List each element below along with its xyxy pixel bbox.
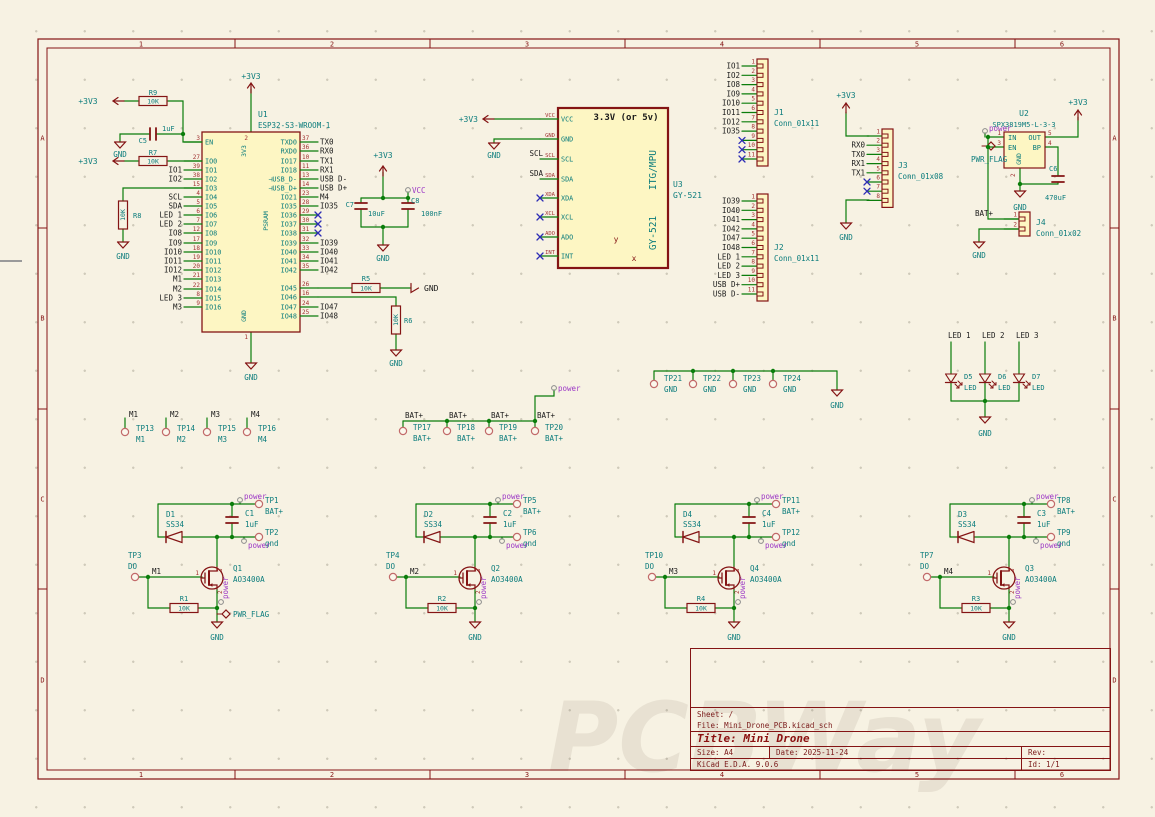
schematic-text[interactable]: 3 (475, 568, 482, 572)
frame-row-label[interactable]: C (1112, 496, 1116, 504)
test-point[interactable] (689, 380, 696, 387)
gnd-label-arrow-icon[interactable] (411, 284, 419, 293)
schematic-text[interactable]: 35 (302, 263, 310, 270)
schematic-text[interactable]: power (248, 541, 271, 550)
schematic-text[interactable]: IO9 (205, 240, 217, 248)
schematic-text[interactable]: DO (645, 562, 655, 571)
schematic-text[interactable]: 7 (196, 217, 200, 224)
schematic-text[interactable]: 1uF (1037, 520, 1051, 529)
gnd-symbol-icon[interactable] (212, 622, 223, 628)
gnd-symbol-icon[interactable] (489, 143, 500, 149)
connector-pin[interactable] (1019, 227, 1025, 231)
net-label[interactable]: IO2 (726, 71, 740, 80)
schematic-text[interactable]: SCL (545, 153, 556, 159)
schematic-text[interactable]: IO14 (205, 286, 221, 294)
net-label[interactable]: LED 1 (717, 252, 740, 261)
test-point[interactable] (162, 428, 169, 435)
schematic-text[interactable]: 1 (987, 570, 991, 577)
j2-ref[interactable]: J2 (774, 243, 784, 252)
schematic-text[interactable]: TP2 (265, 528, 279, 537)
net-label[interactable]: IO12 (722, 117, 740, 126)
schematic-text[interactable]: TP11 (782, 496, 800, 505)
net-label[interactable]: RX0 (851, 141, 865, 150)
led-icon[interactable] (946, 374, 957, 383)
schematic-text[interactable]: ⊣USB_D+ (268, 185, 297, 193)
schematic-text[interactable]: VCC (412, 186, 426, 195)
schematic-text[interactable]: IO18 (281, 167, 297, 175)
schematic-text[interactable]: C8 (411, 197, 419, 205)
frame-row-label[interactable]: B (40, 315, 44, 323)
schematic-text[interactable]: 10K (695, 605, 707, 613)
net-label[interactable]: TX1 (320, 157, 334, 166)
net-label[interactable]: IO1 (726, 62, 740, 71)
schematic-text[interactable]: 4 (751, 86, 755, 93)
connector-pin[interactable] (757, 92, 763, 96)
schematic-text[interactable]: GND (487, 151, 501, 160)
schematic-text[interactable]: GND (1002, 633, 1016, 642)
junction-dot[interactable] (663, 575, 667, 579)
schematic-text[interactable]: VCC (561, 116, 573, 124)
pwr-flag-icon[interactable] (222, 610, 230, 618)
schematic-text[interactable]: 12 (193, 226, 201, 233)
frame-column-label[interactable]: 1 (139, 41, 143, 49)
schematic-text[interactable]: SS34 (683, 520, 702, 529)
schematic-text[interactable]: 1 (1013, 212, 1017, 219)
schematic-text[interactable]: 33 (302, 245, 310, 252)
schematic-text[interactable]: power (765, 541, 788, 550)
schematic-text[interactable]: IO38 (281, 230, 297, 238)
schematic-text[interactable]: 3 (196, 135, 200, 142)
junction-dot[interactable] (406, 196, 410, 200)
schematic-text[interactable]: BAT+ (499, 434, 518, 443)
schematic-text[interactable]: LED (964, 384, 977, 392)
schematic-text[interactable]: 36 (302, 144, 310, 151)
net-label[interactable]: IO2 (168, 175, 182, 184)
schematic-text[interactable]: GND (424, 284, 439, 293)
gnd-symbol-icon[interactable] (115, 142, 126, 148)
connector-pin[interactable] (757, 73, 763, 77)
schematic-text[interactable]: U3 (673, 180, 683, 189)
schematic-text[interactable]: 1uF (245, 520, 259, 529)
schematic-text[interactable]: 7 (751, 249, 755, 256)
frame-row-label[interactable]: B (1112, 315, 1116, 323)
schematic-text[interactable]: SCL (561, 156, 573, 164)
schematic-text[interactable]: M4 (251, 410, 261, 419)
gnd-symbol-icon[interactable] (1004, 622, 1015, 628)
schematic-text[interactable]: 5 (751, 231, 755, 238)
schematic-text[interactable]: 2 (244, 135, 248, 142)
schematic-text[interactable]: IO35 (281, 203, 297, 211)
led-icon[interactable] (958, 381, 962, 385)
schematic-text[interactable]: TP22 (703, 374, 721, 383)
junction-dot[interactable] (986, 135, 990, 139)
test-point[interactable] (243, 428, 250, 435)
frame-row-label[interactable]: D (40, 677, 44, 685)
schematic-text[interactable]: M1 (129, 410, 138, 419)
schematic-text[interactable]: 7 (751, 114, 755, 121)
junction-dot[interactable] (404, 575, 408, 579)
schematic-text[interactable]: IO46 (281, 294, 297, 302)
schematic-text[interactable]: IO5 (205, 203, 217, 211)
net-label[interactable]: IO42 (320, 266, 338, 275)
schematic-text[interactable]: TP14 (177, 424, 196, 433)
schematic-text[interactable]: LED 3 (1016, 331, 1039, 340)
connector-pin[interactable] (882, 198, 888, 202)
junction-dot[interactable] (381, 196, 385, 200)
schematic-text[interactable]: M1 (152, 567, 161, 576)
led-icon[interactable] (1014, 374, 1025, 383)
frame-row-label[interactable]: D (1112, 677, 1116, 685)
test-point[interactable] (531, 427, 538, 434)
schematic-text[interactable]: GND (244, 373, 258, 382)
schematic-text[interactable]: XCL (561, 214, 573, 222)
junction-dot[interactable] (1022, 535, 1026, 539)
schematic-text[interactable]: 9 (196, 300, 200, 307)
junction-dot[interactable] (731, 369, 735, 373)
connector-pin[interactable] (757, 255, 763, 259)
schematic-text[interactable]: 4 (196, 190, 200, 197)
schematic-text[interactable]: IO12 (205, 267, 221, 275)
diode[interactable] (424, 532, 440, 543)
schematic-text[interactable]: 23 (302, 190, 310, 197)
schematic-text[interactable]: TP16 (258, 424, 277, 433)
net-label[interactable]: IO48 (320, 312, 339, 321)
schematic-text[interactable]: 10K (392, 314, 400, 326)
schematic-text[interactable]: TP3 (128, 551, 142, 560)
schematic-text[interactable]: 1uF (503, 520, 517, 529)
net-label[interactable]: IO48 (722, 243, 741, 252)
schematic-text[interactable]: 1uF (762, 520, 776, 529)
schematic-text[interactable]: DO (128, 562, 138, 571)
schematic-text[interactable]: GND (783, 385, 797, 394)
schematic-text[interactable]: C6 (1049, 165, 1057, 173)
schematic-text[interactable]: 3 (734, 568, 741, 572)
schematic-text[interactable]: 38 (193, 172, 201, 179)
gnd-symbol-icon[interactable] (118, 242, 129, 248)
test-point[interactable] (648, 573, 655, 580)
net-label[interactable]: IO40 (320, 248, 339, 257)
schematic-text[interactable]: RXD0 (281, 148, 297, 156)
kicad-schematic-canvas[interactable]: PCBWay 112233445566AABBCCDD3EN27IO039IO1… (0, 0, 1155, 817)
frame-column-label[interactable]: 6 (1060, 771, 1064, 779)
connector-pin[interactable] (757, 208, 763, 212)
schematic-text[interactable]: x (632, 254, 637, 263)
schematic-text[interactable]: 34 (302, 254, 310, 261)
j4-body[interactable] (1019, 212, 1030, 236)
frame-column-label[interactable]: 1 (139, 771, 143, 779)
schematic-text[interactable]: 9 (751, 268, 755, 275)
net-label[interactable]: IO35 (320, 202, 338, 211)
test-point[interactable] (513, 500, 520, 507)
net-label[interactable]: IO8 (726, 80, 740, 89)
j4-value[interactable]: Conn_01x02 (1036, 229, 1081, 238)
schematic-text[interactable]: 6 (196, 208, 200, 215)
schematic-text[interactable]: 6 (876, 175, 880, 182)
schematic-text[interactable]: 3 (751, 77, 755, 84)
j1-ref[interactable]: J1 (774, 108, 784, 117)
schematic-text[interactable]: 37 (302, 135, 310, 142)
schematic-text[interactable]: IO42 (281, 267, 297, 275)
connector-pin[interactable] (757, 120, 763, 124)
schematic-text[interactable]: 8 (196, 291, 200, 298)
schematic-text[interactable]: GND (664, 385, 678, 394)
schematic-text[interactable]: 3 (876, 147, 880, 154)
connector-pin[interactable] (757, 129, 763, 133)
schematic-text[interactable]: AO3400A (233, 575, 265, 584)
connector-pin[interactable] (757, 138, 763, 142)
junction-dot[interactable] (488, 535, 492, 539)
schematic-text[interactable]: 5 (196, 199, 200, 206)
junction-dot[interactable] (691, 369, 695, 373)
net-label[interactable]: RX1 (851, 159, 865, 168)
net-label[interactable]: IO41 (722, 215, 740, 224)
schematic-text[interactable]: 6 (751, 105, 755, 112)
schematic-text[interactable]: 1 (195, 570, 199, 577)
schematic-text[interactable]: TP23 (743, 374, 761, 383)
test-point[interactable] (443, 427, 450, 434)
schematic-text[interactable]: AO3400A (750, 575, 782, 584)
schematic-text[interactable]: 11 (302, 163, 310, 170)
schematic-text[interactable]: GND (240, 310, 248, 322)
connector-pin[interactable] (882, 152, 888, 156)
net-label[interactable]: USB D+ (320, 184, 348, 193)
schematic-text[interactable]: PWR_FLAG (233, 610, 270, 619)
test-point[interactable] (389, 573, 396, 580)
net-label[interactable]: LED 3 (159, 294, 182, 303)
net-label[interactable]: LED 1 (159, 211, 182, 220)
schematic-text[interactable]: 5 (876, 165, 880, 172)
schematic-text[interactable]: GND (1013, 203, 1027, 212)
schematic-text[interactable]: IO36 (281, 212, 297, 220)
schematic-text[interactable]: 1 (453, 570, 457, 577)
schematic-text[interactable]: 1uF (162, 125, 175, 133)
schematic-text[interactable]: 1 (751, 194, 755, 201)
net-label[interactable]: M1 (173, 275, 182, 284)
schematic-text[interactable]: BP (1033, 144, 1041, 152)
schematic-text[interactable]: 1 (712, 570, 716, 577)
schematic-text[interactable]: C7 (346, 201, 354, 209)
schematic-text[interactable]: GND (978, 429, 992, 438)
net-label[interactable]: TX1 (851, 168, 865, 177)
connector-pin[interactable] (882, 180, 888, 184)
schematic-text[interactable]: GND (113, 150, 127, 159)
junction-dot[interactable] (473, 606, 477, 610)
net-label[interactable]: IO40 (722, 206, 741, 215)
schematic-text[interactable]: power (506, 541, 529, 550)
schematic-text[interactable]: 18 (193, 245, 201, 252)
schematic-text[interactable]: C1 (245, 509, 254, 518)
net-label[interactable]: IO11 (722, 108, 740, 117)
schematic-text[interactable]: IO3 (205, 185, 217, 193)
schematic-text[interactable]: 13 (302, 172, 310, 179)
test-point[interactable] (121, 428, 128, 435)
schematic-text[interactable]: 21 (193, 272, 201, 279)
schematic-text[interactable]: power (221, 576, 230, 599)
schematic-text[interactable]: GND (210, 633, 224, 642)
schematic-text[interactable]: 10K (436, 605, 448, 613)
test-point[interactable] (772, 533, 779, 540)
net-label[interactable]: USB D- (713, 290, 740, 299)
net-label[interactable]: IO9 (168, 239, 182, 248)
schematic-text[interactable]: Q2 (491, 564, 500, 573)
test-point[interactable] (203, 428, 210, 435)
schematic-text[interactable]: TP17 (413, 423, 431, 432)
gnd-symbol-icon[interactable] (729, 622, 740, 628)
schematic-text[interactable]: GND (830, 401, 844, 410)
test-point[interactable] (255, 533, 262, 540)
junction-dot[interactable] (938, 575, 942, 579)
schematic-text[interactable]: XDA (561, 195, 573, 203)
led-icon[interactable] (980, 374, 991, 383)
schematic-text[interactable]: IO10 (205, 249, 221, 257)
frame-column-label[interactable]: 4 (720, 41, 724, 49)
wire[interactable] (846, 200, 869, 223)
schematic-text[interactable]: GND (703, 385, 717, 394)
schematic-text[interactable]: IO37 (281, 221, 297, 229)
schematic-text[interactable]: SDA (561, 176, 573, 184)
test-point[interactable] (485, 427, 492, 434)
net-label[interactable]: IO9 (726, 89, 740, 98)
junction-dot[interactable] (747, 535, 751, 539)
junction-dot[interactable] (986, 145, 990, 149)
junction-dot[interactable] (230, 535, 234, 539)
schematic-text[interactable]: 2 (751, 68, 755, 75)
schematic-text[interactable]: M1 (136, 435, 145, 444)
schematic-text[interactable]: M4 (944, 567, 954, 576)
schematic-text[interactable]: D1 (166, 510, 175, 519)
schematic-text[interactable]: 7 (876, 184, 880, 191)
net-label[interactable]: IO39 (320, 239, 338, 248)
net-label[interactable]: M4 (320, 193, 330, 202)
schematic-text[interactable]: LED 1 (948, 331, 971, 340)
connector-pin[interactable] (757, 292, 763, 296)
schematic-text[interactable]: 100nF (421, 210, 442, 218)
schematic-text[interactable]: D4 (683, 510, 693, 519)
led-icon[interactable] (992, 381, 996, 385)
schematic-text[interactable]: U2 (1019, 109, 1029, 118)
net-label[interactable]: LED 2 (717, 262, 740, 271)
schematic-text[interactable]: ADO (545, 231, 555, 237)
schematic-text[interactable]: GND (727, 633, 741, 642)
wire[interactable] (979, 229, 1019, 242)
gnd-symbol-icon[interactable] (378, 245, 389, 251)
schematic-text[interactable]: IO7 (205, 221, 217, 229)
schematic-text[interactable]: power (502, 492, 525, 501)
schematic-text[interactable]: D6 (998, 373, 1006, 381)
schematic-text[interactable]: 22 (193, 282, 201, 289)
schematic-text[interactable]: AO3400A (1025, 575, 1057, 584)
test-point[interactable] (513, 533, 520, 540)
net-label[interactable]: M3 (173, 303, 182, 312)
schematic-text[interactable]: 1 (751, 59, 755, 66)
schematic-text[interactable]: TP7 (920, 551, 934, 560)
led-icon[interactable] (1023, 384, 1027, 388)
net-label[interactable]: LED 3 (717, 271, 740, 280)
schematic-text[interactable]: IO1 (205, 167, 217, 175)
schematic-text[interactable]: 3V3 (240, 145, 248, 157)
schematic-text[interactable]: 3 (1009, 568, 1016, 572)
schematic-text[interactable]: SDA (529, 169, 543, 178)
schematic-text[interactable]: 10K (147, 158, 159, 166)
net-label[interactable]: RX0 (320, 147, 334, 156)
schematic-text[interactable]: 1 (244, 334, 248, 341)
schematic-text[interactable]: C5 (139, 137, 147, 145)
schematic-text[interactable]: 2 (751, 203, 755, 210)
test-point[interactable] (1047, 500, 1054, 507)
net-label[interactable]: M2 (173, 285, 182, 294)
schematic-text[interactable]: DO (920, 562, 930, 571)
schematic-text[interactable]: 1 (997, 130, 1001, 137)
schematic-text[interactable]: 470uF (1045, 194, 1066, 202)
schematic-text[interactable]: IO13 (205, 276, 221, 284)
test-point[interactable] (255, 500, 262, 507)
junction-dot[interactable] (1018, 182, 1022, 186)
connector-pin[interactable] (882, 162, 888, 166)
schematic-text[interactable]: 5 (751, 96, 755, 103)
schematic-text[interactable]: SS34 (958, 520, 977, 529)
schematic-text[interactable]: LED (998, 384, 1011, 392)
connector-pin[interactable] (757, 283, 763, 287)
connector-pin[interactable] (757, 236, 763, 240)
schematic-text[interactable]: 39 (193, 163, 201, 170)
net-label[interactable]: LED 2 (159, 220, 182, 229)
schematic-text[interactable]: IO47 (281, 304, 297, 312)
junction-dot[interactable] (215, 535, 219, 539)
schematic-text[interactable]: INT (545, 250, 556, 256)
schematic-text[interactable]: M2 (177, 435, 186, 444)
net-label[interactable]: IO42 (722, 224, 740, 233)
schematic-text[interactable]: +3V3 (78, 97, 97, 106)
schematic-text[interactable]: 10 (748, 142, 756, 149)
schematic-text[interactable]: EN (205, 139, 213, 147)
frame-column-label[interactable]: 2 (330, 771, 334, 779)
schematic-text[interactable]: 5 (1048, 130, 1052, 137)
schematic-text[interactable]: 3 (997, 140, 1001, 147)
schematic-text[interactable]: R9 (149, 89, 157, 97)
schematic-text[interactable]: TP12 (782, 528, 800, 537)
frame-column-label[interactable]: 2 (330, 41, 334, 49)
schematic-text[interactable]: D7 (1032, 373, 1040, 381)
schematic-text[interactable]: TXD0 (281, 139, 297, 147)
gnd-symbol-icon[interactable] (980, 417, 991, 423)
schematic-text[interactable]: D5 (964, 373, 972, 381)
schematic-text[interactable]: BAT+ (491, 411, 510, 420)
frame-row-label[interactable]: A (40, 135, 45, 143)
schematic-text[interactable]: +3V3 (78, 157, 97, 166)
schematic-text[interactable]: R5 (362, 275, 370, 283)
schematic-text[interactable]: 2 (1013, 222, 1017, 229)
schematic-text[interactable]: GND (561, 136, 573, 144)
schematic-text[interactable]: 11 (748, 287, 756, 294)
schematic-text[interactable]: GND (1015, 153, 1023, 165)
schematic-text[interactable]: 3 (751, 212, 755, 219)
schematic-text[interactable]: 28 (302, 199, 310, 206)
schematic-text[interactable]: BAT+ (537, 411, 556, 420)
junction-dot[interactable] (488, 502, 492, 506)
led-icon[interactable] (955, 384, 959, 388)
connector-pin[interactable] (757, 148, 763, 152)
junction-dot[interactable] (215, 606, 219, 610)
junction-dot[interactable] (146, 575, 150, 579)
schematic-text[interactable]: IO2 (205, 176, 217, 184)
schematic-text[interactable]: 32 (302, 236, 310, 243)
frame-column-label[interactable]: 5 (915, 41, 919, 49)
schematic-text[interactable]: DO (386, 562, 396, 571)
connector-pin[interactable] (757, 157, 763, 161)
schematic-text[interactable]: +3V3 (836, 91, 855, 100)
schematic-text[interactable]: IO48 (281, 313, 297, 321)
test-point[interactable] (399, 427, 406, 434)
